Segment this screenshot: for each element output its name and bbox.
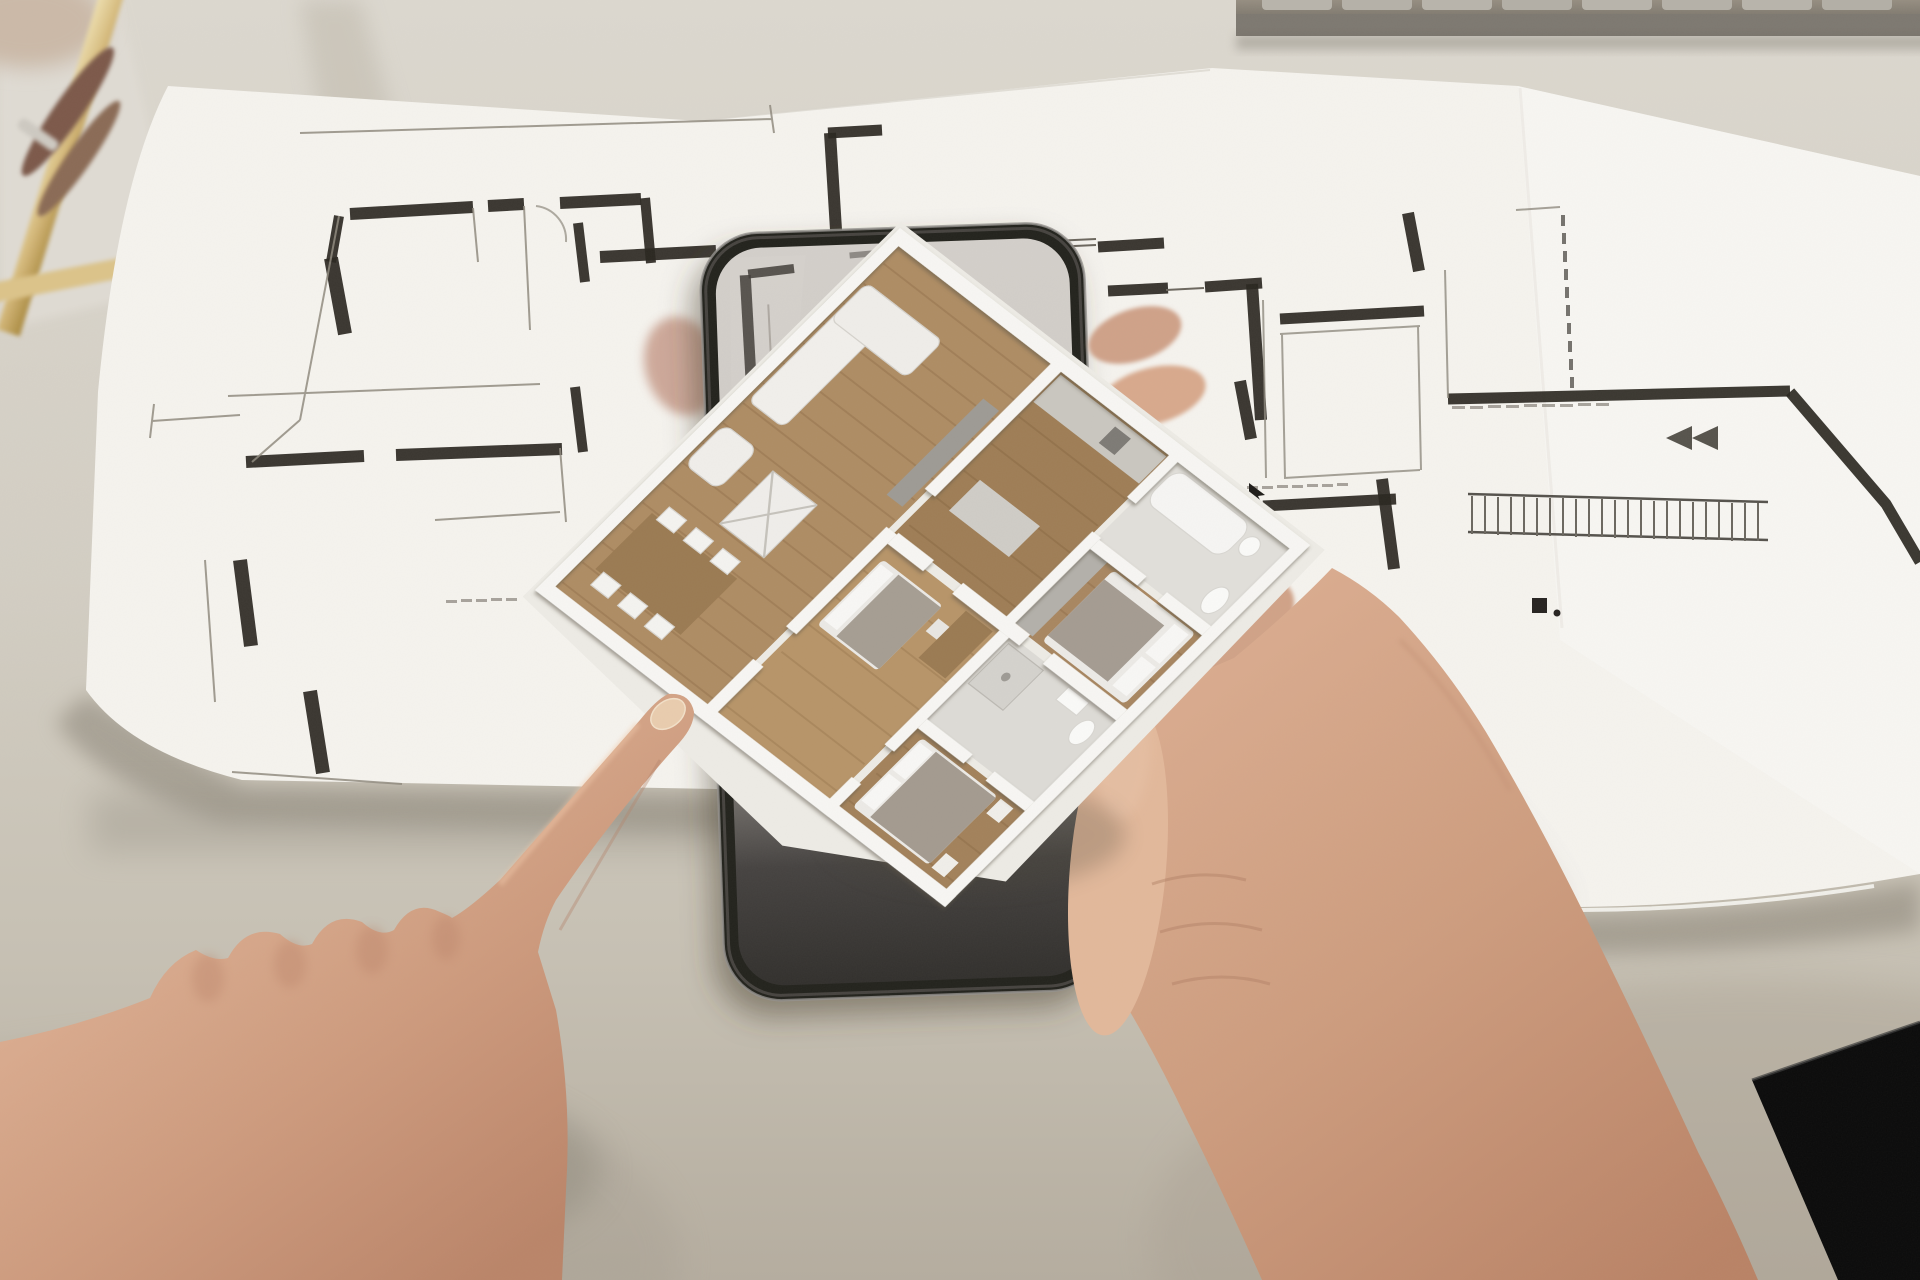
- scene-svg: [0, 0, 1920, 1280]
- photo-stage: [0, 0, 1920, 1280]
- photo-grain-overlay: [0, 0, 1920, 1280]
